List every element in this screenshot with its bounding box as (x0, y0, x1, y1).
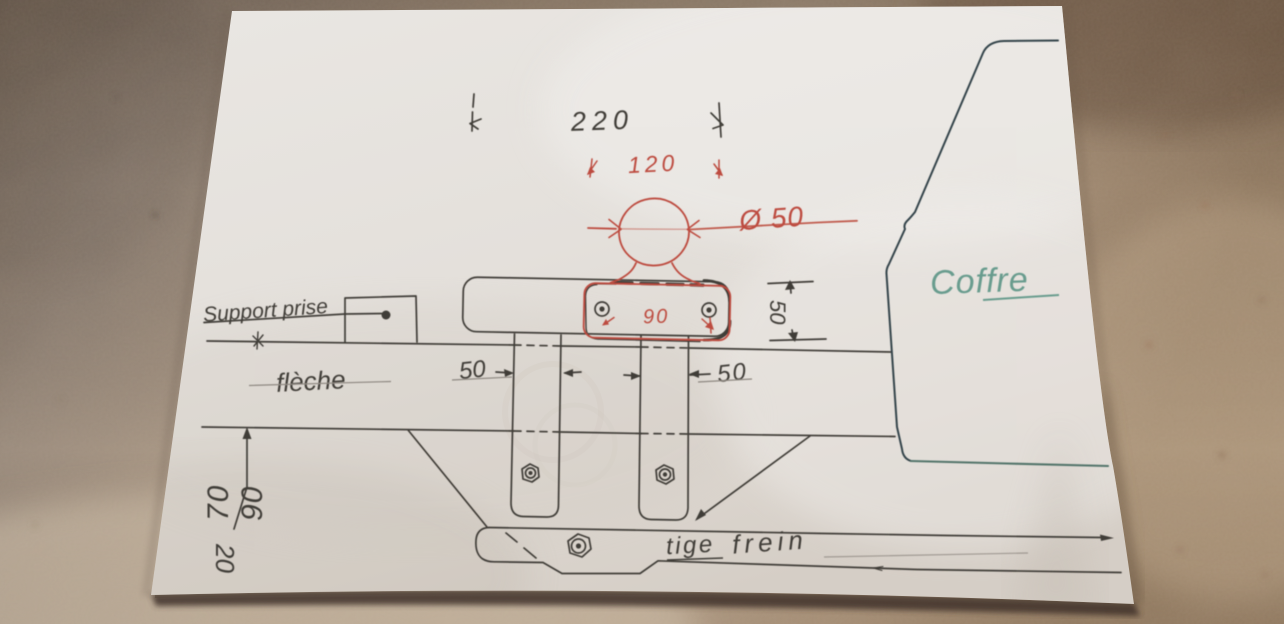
svg-text:tige: tige (665, 531, 715, 561)
svg-text:120: 120 (627, 150, 679, 179)
svg-text:90: 90 (236, 486, 269, 521)
svg-text:20: 20 (210, 543, 240, 573)
svg-text:50: 50 (716, 358, 749, 388)
svg-text:Coffre: Coffre (929, 261, 1029, 302)
svg-text:50: 50 (765, 300, 790, 325)
svg-text:Ø 50: Ø 50 (737, 201, 805, 237)
svg-text:220: 220 (569, 105, 634, 137)
svg-text:50: 50 (458, 355, 488, 385)
svg-text:flèche: flèche (275, 364, 346, 398)
svg-text:frein: frein (731, 524, 808, 559)
svg-text:70: 70 (202, 484, 235, 521)
svg-text:90: 90 (643, 306, 670, 329)
